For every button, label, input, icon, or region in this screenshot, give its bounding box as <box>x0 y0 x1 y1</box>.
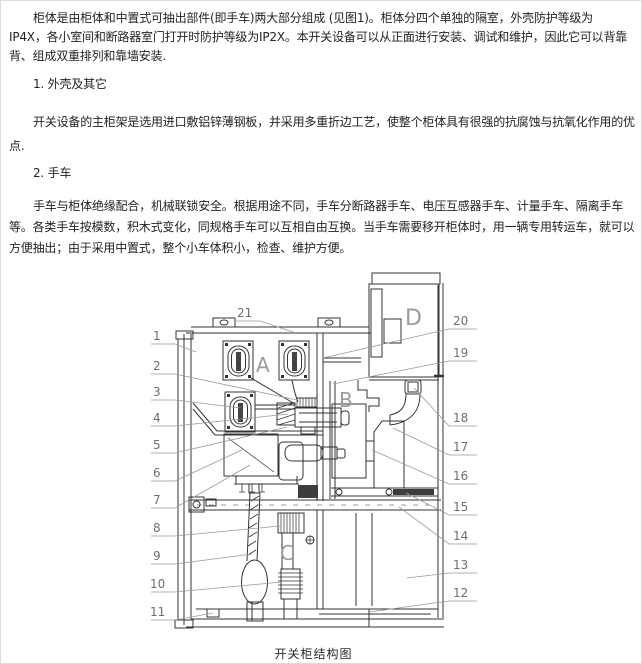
callout-9: 9 <box>153 549 161 563</box>
callout-18: 18 <box>453 411 468 425</box>
compartment-a-label: A <box>256 353 270 377</box>
callout-11: 11 <box>150 605 165 619</box>
callout-21: 21 <box>237 306 252 320</box>
callout-14: 14 <box>453 529 468 543</box>
switchgear-structure-figure: 1 2 3 4 5 6 7 8 9 10 11 12 13 14 15 16 1… <box>141 267 491 647</box>
callout-5: 5 <box>153 438 161 452</box>
breaker-pole <box>224 434 345 498</box>
callout-6: 6 <box>153 466 161 480</box>
callout-8: 8 <box>153 521 161 535</box>
busbar-bushing <box>225 392 255 432</box>
callout-16: 16 <box>453 469 468 483</box>
callout-7: 7 <box>153 493 161 507</box>
paragraph-line: 等。各类手车按模数，积木式变化，同规格手车可以互相自由互换。当手车需要移开柜体时… <box>9 218 635 237</box>
paragraph-line: 手车与柜体绝缘配合，机械联锁安全。根据用途不同，手车分断路器手车、电压互感器手车… <box>33 197 635 216</box>
structure-diagram: 1 2 3 4 5 6 7 8 9 10 11 12 13 14 15 16 1… <box>141 267 491 647</box>
callout-3: 3 <box>153 385 161 399</box>
paragraph-line: 方便抽出；由于采用中置式，整个小车体积小，检查、维护方便。 <box>9 239 635 258</box>
paragraph-line: 柜体是由柜体和中置式可抽出部件(即手车)两大部分组成 (见图1)。柜体分四个单独… <box>33 9 635 28</box>
callout-15: 15 <box>453 500 468 514</box>
callout-13: 13 <box>453 558 468 572</box>
callout-19: 19 <box>453 346 468 360</box>
document-page: 柜体是由柜体和中置式可抽出部件(即手车)两大部分组成 (见图1)。柜体分四个单独… <box>0 0 642 664</box>
compartment-d-label: D <box>405 306 422 331</box>
lv-compartment-box <box>358 273 440 425</box>
compartment-c-label: C <box>280 541 294 565</box>
callout-leaders <box>151 321 477 620</box>
section-heading: 1. 外壳及其它 <box>33 75 635 94</box>
cable-compartment <box>317 358 404 609</box>
callout-12: 12 <box>453 586 468 600</box>
callout-4: 4 <box>153 411 161 425</box>
cable-elbow <box>390 394 406 415</box>
paragraph-line: 点. <box>9 137 635 156</box>
paragraph-line: IP4X，各小室间和断路器室门打开时防护等级为IP2X。本开关设备可以从正面进行… <box>9 28 635 47</box>
insulator-column <box>278 513 314 619</box>
section-heading: 2. 手车 <box>33 164 635 183</box>
compartment-b-label: B <box>339 388 353 412</box>
paragraph-line: 开关设备的主柜架是选用进口敷铝锌薄钢板，并采用多重折边工艺，使整个柜体具有很强的… <box>33 113 635 132</box>
busbar-bushing <box>223 341 253 380</box>
callout-1: 1 <box>153 329 161 343</box>
figure-caption: 开关柜结构图 <box>231 645 396 662</box>
paragraph-line: 背、组成双重排列和靠墙安装. <box>9 47 635 66</box>
callout-10: 10 <box>150 577 165 591</box>
callout-17: 17 <box>453 440 468 454</box>
callout-20: 20 <box>453 314 468 328</box>
busbar-bushing <box>279 341 309 380</box>
callout-2: 2 <box>153 359 161 373</box>
earthing-rod <box>242 484 268 621</box>
